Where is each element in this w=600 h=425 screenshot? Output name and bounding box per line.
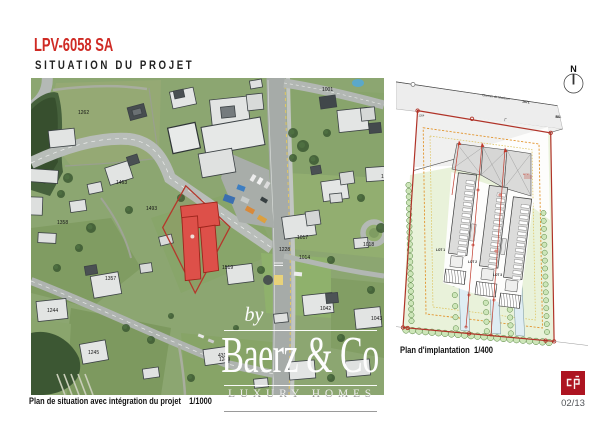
svg-text:1017: 1017 — [297, 235, 308, 241]
svg-text:BU.: BU. — [556, 115, 562, 119]
svg-text:1519: 1519 — [222, 265, 233, 271]
svg-text:1042: 1042 — [320, 306, 331, 312]
svg-text:1264: 1264 — [419, 114, 425, 118]
svg-text:1018: 1018 — [363, 242, 374, 248]
svg-text:1244: 1244 — [47, 308, 58, 314]
svg-text:1463: 1463 — [116, 180, 127, 186]
svg-text:acces: acces — [523, 173, 530, 176]
svg-text:1262: 1262 — [78, 110, 89, 116]
svg-text:LOT 2: LOT 2 — [468, 260, 477, 264]
svg-text:LOT 3: LOT 3 — [493, 273, 502, 277]
svg-text:1001: 1001 — [322, 87, 333, 93]
svg-text:1014: 1014 — [299, 255, 310, 261]
svg-text:1228: 1228 — [279, 247, 290, 253]
svg-text:1357: 1357 — [105, 276, 116, 282]
svg-text:1245: 1245 — [88, 350, 99, 356]
svg-text:LOT 1: LOT 1 — [436, 248, 445, 252]
svg-text:1493: 1493 — [146, 206, 157, 212]
svg-text:1043: 1043 — [371, 316, 382, 322]
svg-text:1358: 1358 — [57, 220, 68, 226]
svg-text:1012: 1012 — [381, 174, 384, 180]
svg-text:N: N — [570, 64, 577, 74]
